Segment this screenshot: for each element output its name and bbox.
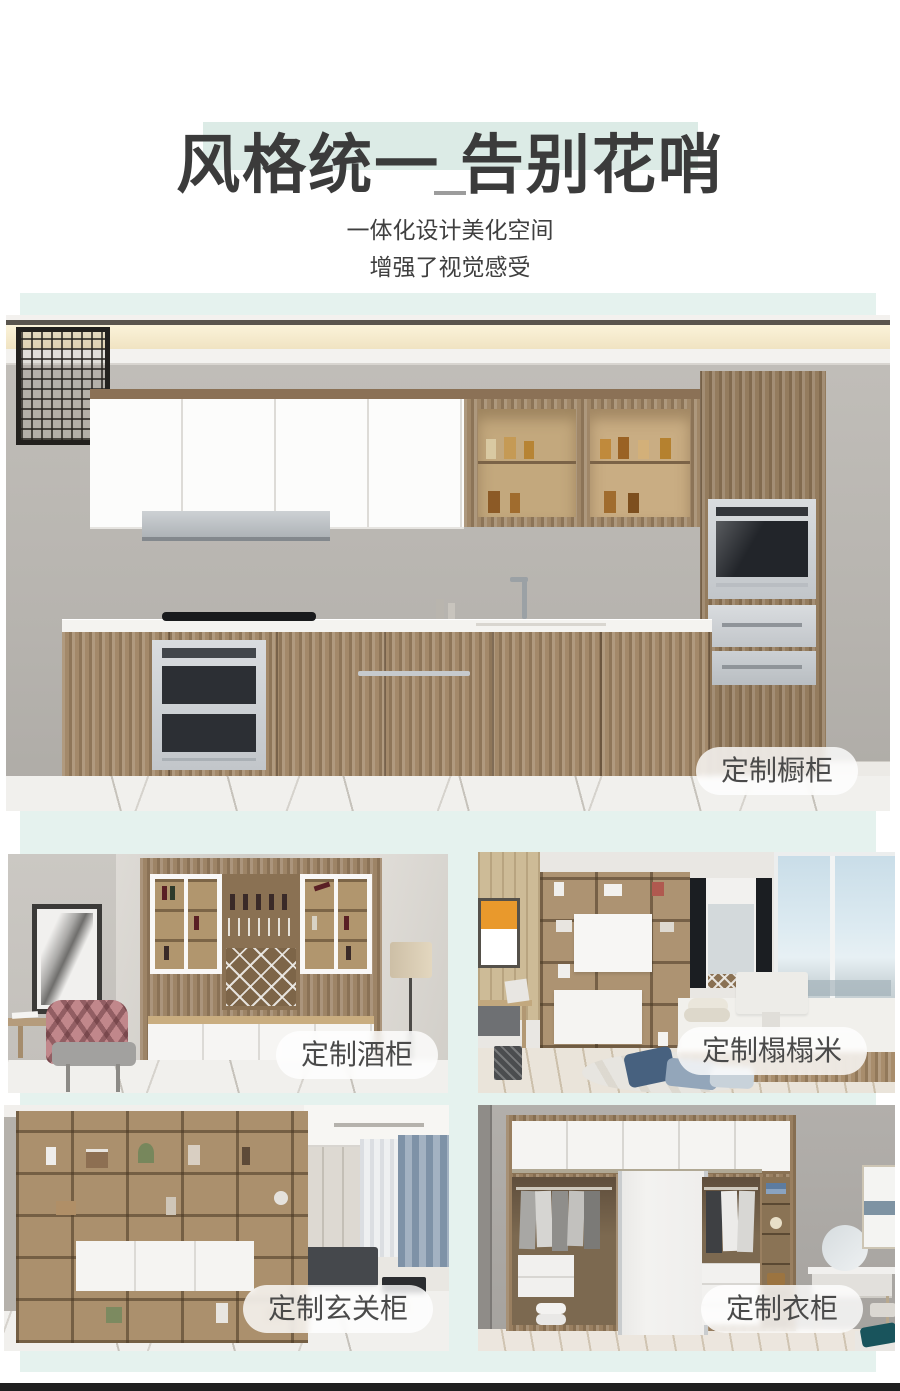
decor-item <box>505 979 530 1004</box>
hanging-clothes <box>706 1191 722 1253</box>
decor-item <box>436 599 444 619</box>
open-shelf <box>590 409 690 517</box>
wire-basket <box>494 1046 522 1080</box>
decor-item <box>604 491 616 513</box>
wine-bottle <box>344 916 349 930</box>
decor-item <box>524 441 534 459</box>
chair-cushion <box>52 1042 136 1066</box>
entry-cabinet-photo: 定制玄关柜 <box>4 1105 449 1351</box>
hanging-clothes <box>584 1191 600 1249</box>
sliding-door <box>618 1171 708 1335</box>
decor-item <box>618 437 629 459</box>
top-cabinets <box>512 1121 790 1174</box>
hanging-rod <box>516 1187 612 1190</box>
inner-drawers <box>518 1255 574 1297</box>
dark-glass-door <box>690 878 706 988</box>
tatami-label-badge: 定制榻榻米 <box>677 1027 867 1075</box>
desk-drawers <box>478 1006 520 1036</box>
decor-item <box>188 1145 200 1165</box>
hanging-clothes <box>552 1191 568 1251</box>
decor-item <box>488 491 500 513</box>
oven-glass <box>716 521 808 577</box>
decor-item <box>658 1032 668 1046</box>
wardrobe-label-badge: 定制衣柜 <box>701 1285 863 1333</box>
wine-bottle <box>164 946 169 960</box>
wine-rack-grid <box>226 948 296 1006</box>
subtitle: 一体化设计美化空间 增强了视觉感受 <box>0 212 900 286</box>
decor-item <box>504 437 516 459</box>
decor-item <box>138 1143 154 1163</box>
subtitle-line-1: 一体化设计美化空间 <box>0 212 900 249</box>
wine-bottle <box>194 916 199 930</box>
tea-table <box>736 972 808 1014</box>
range-hood <box>142 511 330 541</box>
open-shelf <box>478 409 576 517</box>
open-niche <box>222 874 300 1010</box>
wardrobe-photo: 定制衣柜 <box>478 1105 895 1351</box>
hanging-clothes <box>567 1191 585 1247</box>
kitchen-photo: 定制橱柜 <box>6 315 890 811</box>
decor-item <box>652 882 664 896</box>
wine-cabinet-photo: 定制酒柜 <box>8 854 448 1093</box>
upper-white-cabinets <box>90 399 464 529</box>
floor-lamp <box>390 942 432 978</box>
cushion <box>684 1008 730 1022</box>
hanging-clothes <box>737 1191 755 1253</box>
warming-drawer <box>708 605 816 647</box>
hanging-rod <box>704 1187 758 1190</box>
decor-item <box>448 603 455 619</box>
cooktop <box>162 612 316 621</box>
decor-item <box>604 884 622 896</box>
wine-bottle <box>312 916 317 930</box>
decor-item <box>106 1307 122 1323</box>
kitchen-label-badge: 定制橱柜 <box>696 747 858 795</box>
subtitle-line-2: 增强了视觉感受 <box>0 249 900 286</box>
decor-item <box>628 493 639 513</box>
decor-item <box>554 882 564 896</box>
decor-item <box>510 493 520 513</box>
sheer-curtain <box>360 1139 402 1257</box>
white-panel <box>574 914 652 972</box>
bottle-row <box>230 894 292 910</box>
decor-item <box>166 1197 176 1215</box>
decor-item <box>660 922 674 932</box>
crown-molding <box>6 349 890 365</box>
promo-page: 风格统一 告别花哨 一体化设计美化空间 增强了视觉感受 <box>0 0 900 1391</box>
wine-label-badge: 定制酒柜 <box>276 1031 438 1079</box>
curtain <box>398 1135 449 1267</box>
folded-clothes <box>766 1189 786 1194</box>
white-panel <box>554 990 642 1044</box>
storage-box <box>536 1314 566 1325</box>
open-section-left <box>512 1177 616 1325</box>
decor-item <box>56 1201 76 1215</box>
wine-bottle <box>162 886 167 900</box>
hanging-clothes <box>519 1191 537 1250</box>
decor-item <box>558 964 570 978</box>
tatami-photo: 定制榻榻米 <box>478 852 895 1093</box>
mirror-niche <box>708 904 754 974</box>
decor-item <box>216 1303 228 1323</box>
glass-door <box>300 874 372 974</box>
decor-item <box>46 1147 56 1165</box>
stemware-rack <box>228 918 294 936</box>
decor-item <box>770 1217 782 1229</box>
steam-oven <box>152 640 266 770</box>
decor-item <box>660 438 671 459</box>
wall-art <box>862 1165 895 1249</box>
glass-door <box>150 874 222 974</box>
sofa <box>304 1247 378 1287</box>
built-in-oven <box>708 499 816 599</box>
decor-item <box>556 920 572 932</box>
wall-art <box>32 904 102 1014</box>
sink <box>476 623 606 626</box>
stool <box>870 1303 895 1317</box>
white-doors <box>76 1241 254 1291</box>
tv-wall <box>304 1147 364 1249</box>
decor-item <box>767 1273 785 1285</box>
hanging-clothes <box>535 1191 553 1248</box>
title-divider <box>434 191 466 195</box>
wine-bottle <box>346 946 351 960</box>
decor-item <box>274 1191 288 1205</box>
wall-art <box>478 898 520 968</box>
decor-item <box>86 1149 108 1168</box>
decor-item <box>242 1147 250 1165</box>
wine-bottle <box>170 886 175 900</box>
drawer-handle <box>358 671 470 676</box>
cove-light <box>6 325 890 349</box>
decor-item <box>638 440 649 459</box>
decor-item <box>600 439 611 459</box>
entry-label-badge: 定制玄关柜 <box>243 1285 433 1333</box>
decor-item <box>486 439 496 459</box>
storage-box <box>536 1303 566 1314</box>
appliance-drawer <box>708 651 816 685</box>
next-section-bar <box>0 1383 900 1391</box>
